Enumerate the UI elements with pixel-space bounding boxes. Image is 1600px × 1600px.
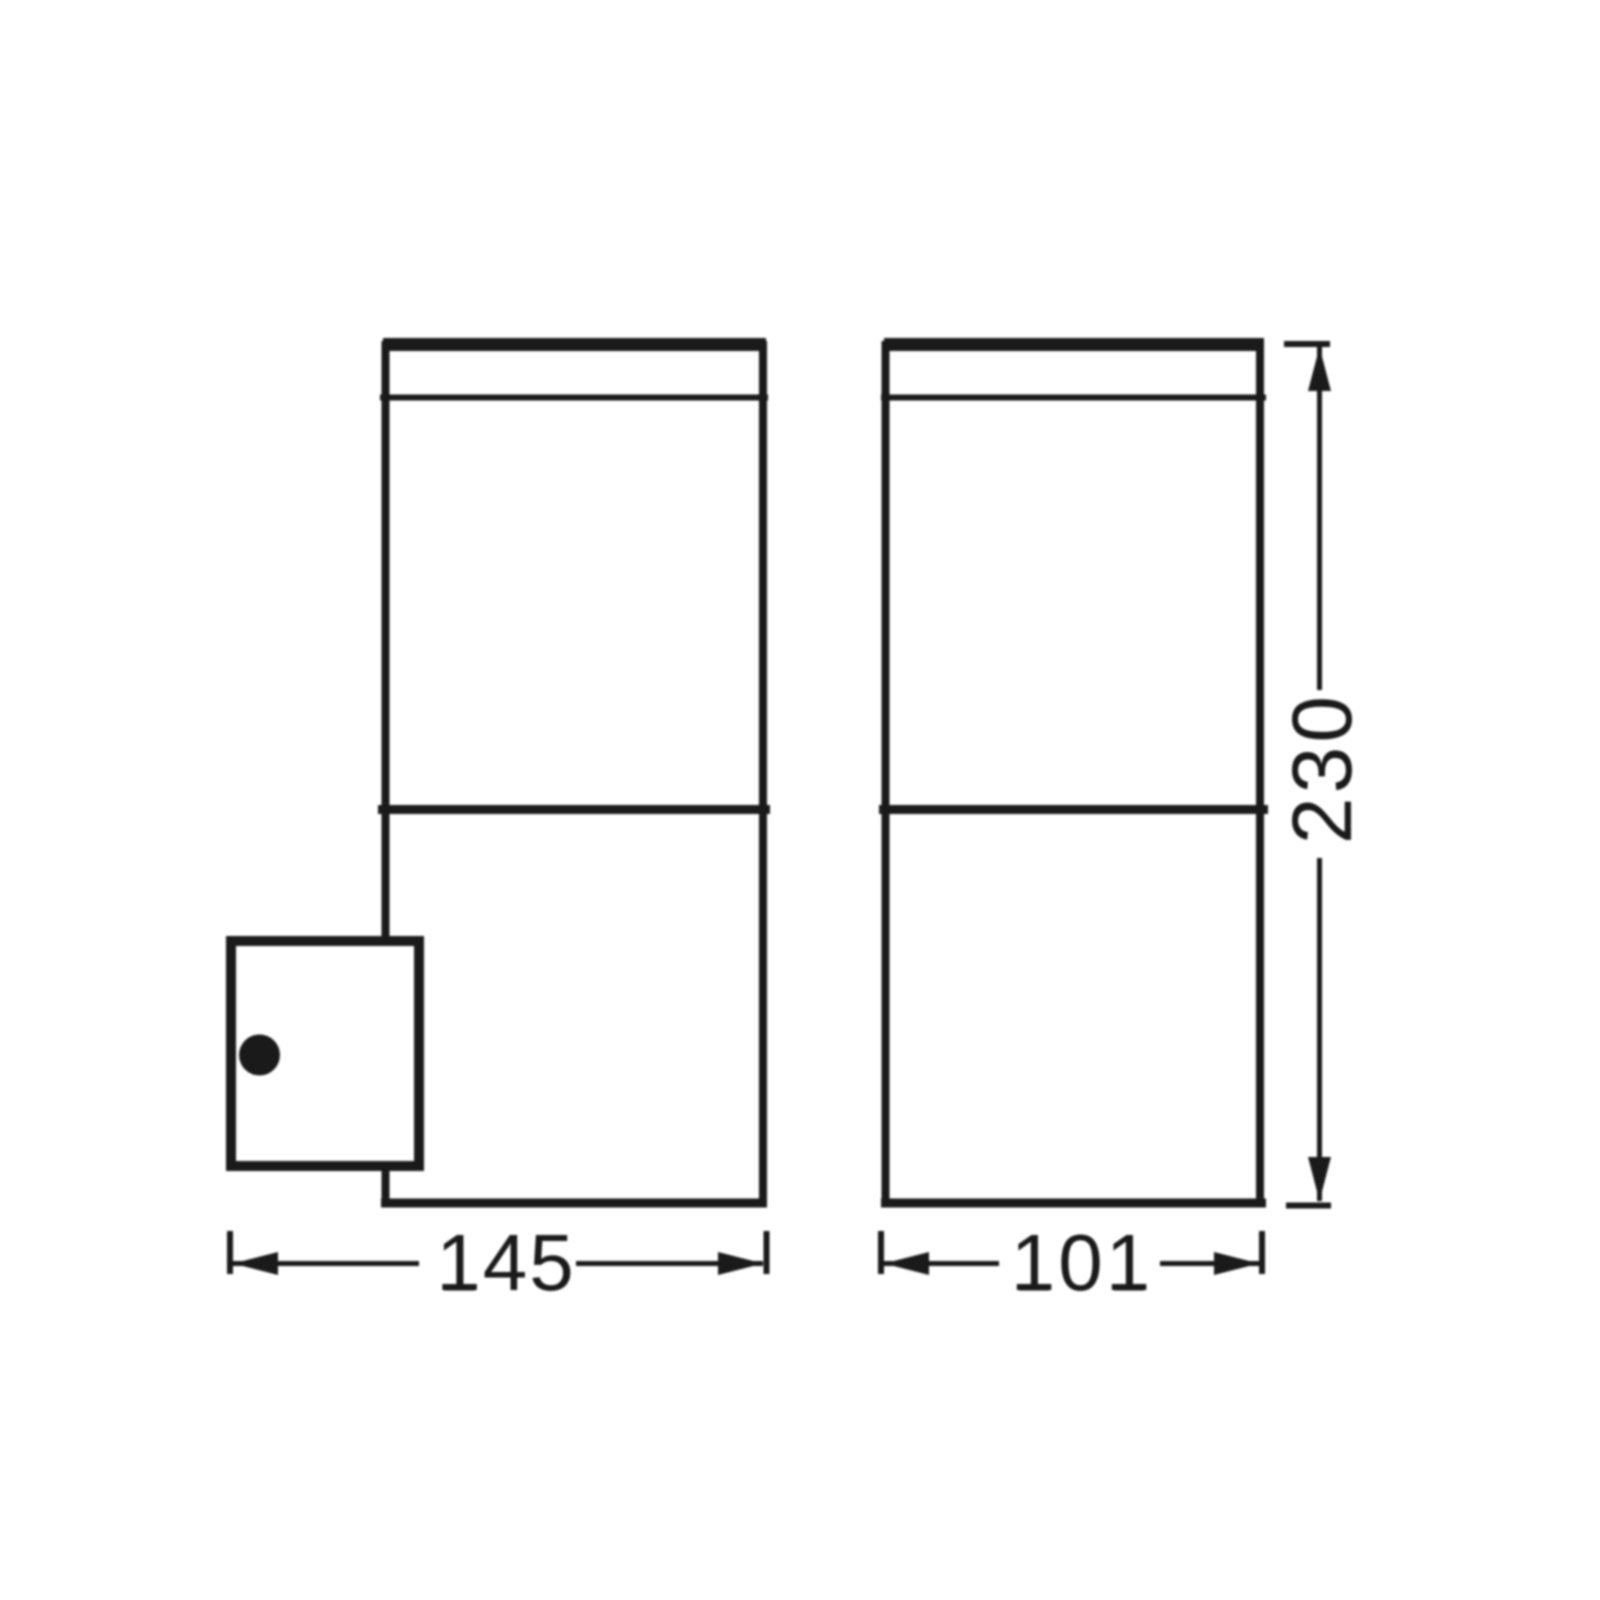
svg-text:101: 101 — [1011, 1218, 1153, 1307]
svg-text:230: 230 — [1275, 692, 1369, 844]
svg-text:145: 145 — [436, 1218, 575, 1307]
